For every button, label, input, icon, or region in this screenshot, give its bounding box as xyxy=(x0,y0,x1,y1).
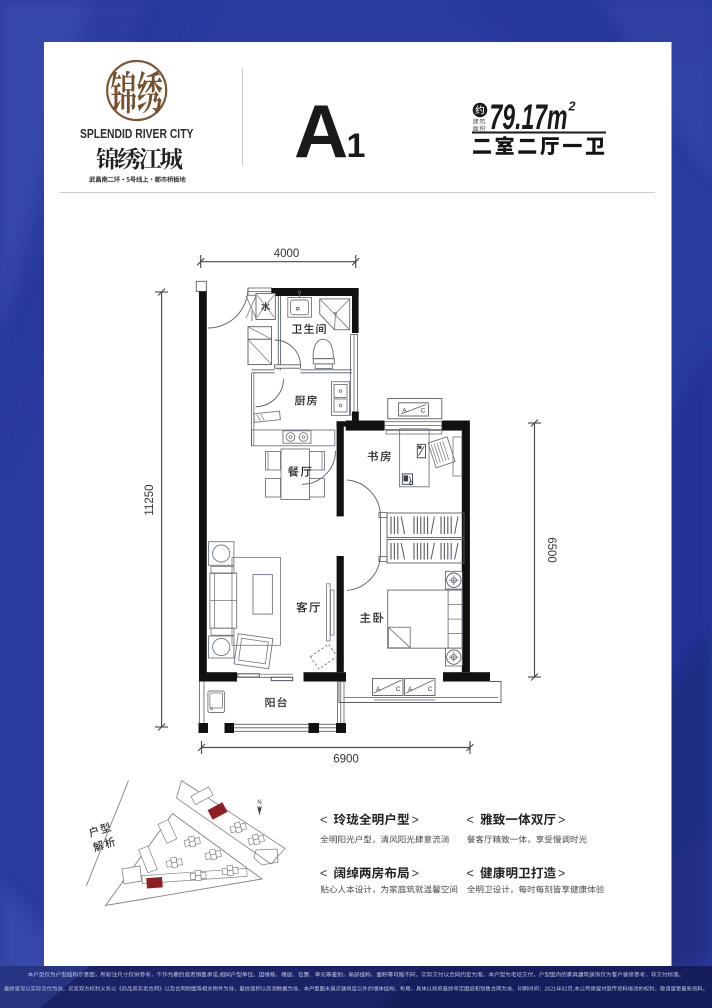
svg-text:>: > xyxy=(558,813,565,827)
svg-text:<: < xyxy=(467,867,474,881)
svg-text:<: < xyxy=(320,867,327,881)
svg-text:2: 2 xyxy=(568,100,576,114)
svg-text:<: < xyxy=(467,813,474,827)
svg-text:A: A xyxy=(408,687,412,693)
svg-text:A: A xyxy=(294,89,348,173)
svg-text:C: C xyxy=(421,408,426,415)
svg-text:C: C xyxy=(428,687,433,693)
svg-text:N: N xyxy=(257,800,261,806)
svg-text:6500: 6500 xyxy=(545,537,557,563)
svg-text:1: 1 xyxy=(347,127,366,165)
svg-text:4000: 4000 xyxy=(274,248,300,260)
svg-text:<: < xyxy=(320,813,327,827)
svg-text:>: > xyxy=(558,867,565,881)
svg-text:C: C xyxy=(396,687,401,693)
svg-text:79.17m: 79.17m xyxy=(490,97,568,137)
svg-text:>: > xyxy=(412,867,419,881)
svg-text:6900: 6900 xyxy=(333,754,359,766)
svg-text:>: > xyxy=(412,813,419,827)
svg-text:11250: 11250 xyxy=(144,484,156,515)
svg-text:A: A xyxy=(376,687,380,693)
svg-text:SPLENDID RIVER CITY: SPLENDID RIVER CITY xyxy=(80,126,194,141)
